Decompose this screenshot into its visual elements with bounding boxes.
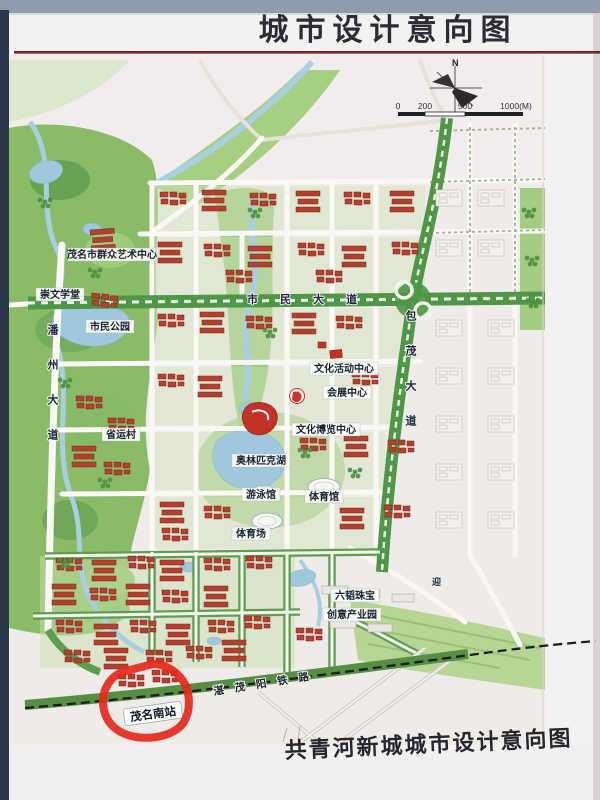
label-swimming-hall: 游泳馆 [242,488,280,501]
scale-tick: 0 [396,101,401,111]
scale-tick: 200 [418,101,432,111]
svg-text:崇文学堂: 崇文学堂 [40,288,80,301]
label-convention-center: 会展中心 [323,386,371,399]
label-culture-expo-center: 文化博览中心 [292,423,360,436]
label-citizen-park: 市民公园 [86,320,134,333]
svg-text:市民公园: 市民公园 [90,320,130,333]
svg-text:文化活动中心: 文化活动中心 [314,362,374,375]
svg-text:奥林匹克湖: 奥林匹克湖 [236,454,286,467]
svg-text:会展中心: 会展中心 [327,386,367,399]
svg-text:体育场: 体育场 [236,527,266,540]
label-shimin-avenue: 市民大道 [247,292,379,306]
svg-text:游泳馆: 游泳馆 [246,488,276,501]
label-stadium: 体育场 [232,527,270,540]
svg-text:茂名市群众艺术中心: 茂名市群众艺术中心 [67,248,157,261]
label-provincial-games-village: 省运村 [102,428,140,441]
svg-text:文化博览中心: 文化博览中心 [296,423,356,436]
svg-text:创意产业园: 创意产业园 [326,608,377,621]
culture-activity-building [330,349,343,358]
scale-tick: 500 [458,101,472,111]
stadium-oval [252,513,282,529]
label-chongwen-school: 崇文学堂 [36,288,84,301]
label-gymnasium: 体育馆 [305,490,343,503]
scale-tick: 1000(M) [500,101,532,111]
culture-expo-building [242,402,277,435]
svg-text:体育馆: 体育馆 [309,490,339,503]
svg-text:六韬珠宝: 六韬珠宝 [335,589,375,602]
label-panzhou-avenue: 潘州大道 [46,323,60,464]
planning-map-photo: 城市设计意向图 N 0 200 500 1000(M) 茂名市群众艺术中心 崇文… [0,0,600,800]
label-olympic-lake: 奥林匹克湖 [232,454,290,467]
svg-text:省运村: 省运村 [105,428,136,441]
label-ying-road: 迎 [432,576,441,587]
label-baomao-avenue: 包茂大道 [404,309,418,450]
label-art-center: 茂名市群众艺术中心 [67,248,157,261]
page-title: 城市设计意向图 [259,13,518,47]
label-culture-activity-center: 文化活动中心 [310,362,378,375]
title-underline [14,51,600,54]
